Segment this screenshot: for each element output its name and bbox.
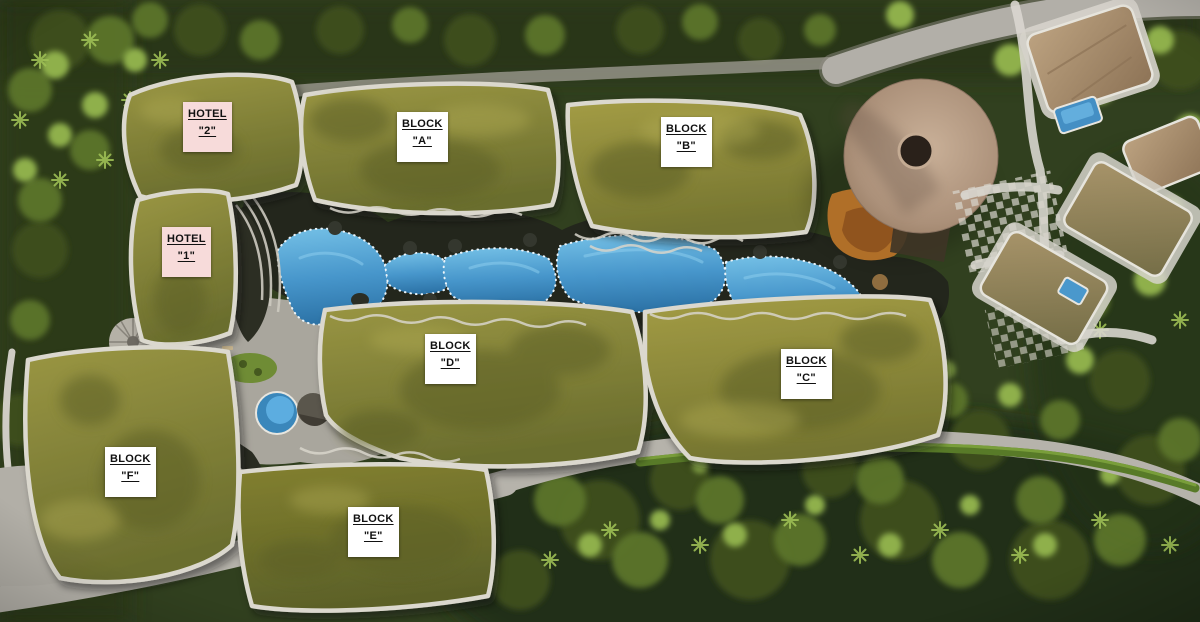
label-line-1: BLOCK [666,121,707,138]
label-block-e: BLOCK "E" [348,507,399,557]
label-line-1: HOTEL [167,231,206,248]
label-line-1: BLOCK [353,511,394,528]
label-line-2: "A" [402,133,443,150]
label-block-b: BLOCK "B" [661,117,712,167]
vignette-overlay [0,0,1200,622]
label-block-f: BLOCK "F" [105,447,156,497]
label-line-2: "C" [786,370,827,387]
label-hotel-2: HOTEL "2" [183,102,232,152]
label-line-2: "2" [188,123,227,140]
label-line-1: BLOCK [430,338,471,355]
aerial-render [0,0,1200,622]
label-line-2: "F" [110,468,151,485]
label-line-1: BLOCK [110,451,151,468]
label-line-2: "D" [430,355,471,372]
label-block-d: BLOCK "D" [425,334,476,384]
label-line-1: BLOCK [402,116,443,133]
label-line-1: BLOCK [786,353,827,370]
label-line-2: "B" [666,138,707,155]
label-line-1: HOTEL [188,106,227,123]
label-block-c: BLOCK "C" [781,349,832,399]
label-block-a: BLOCK "A" [397,112,448,162]
label-line-2: "E" [353,528,394,545]
label-hotel-1: HOTEL "1" [162,227,211,277]
label-line-2: "1" [167,248,206,265]
site-plan-render: HOTEL "2" BLOCK "A" BLOCK "B" HOTEL "1" … [0,0,1200,622]
